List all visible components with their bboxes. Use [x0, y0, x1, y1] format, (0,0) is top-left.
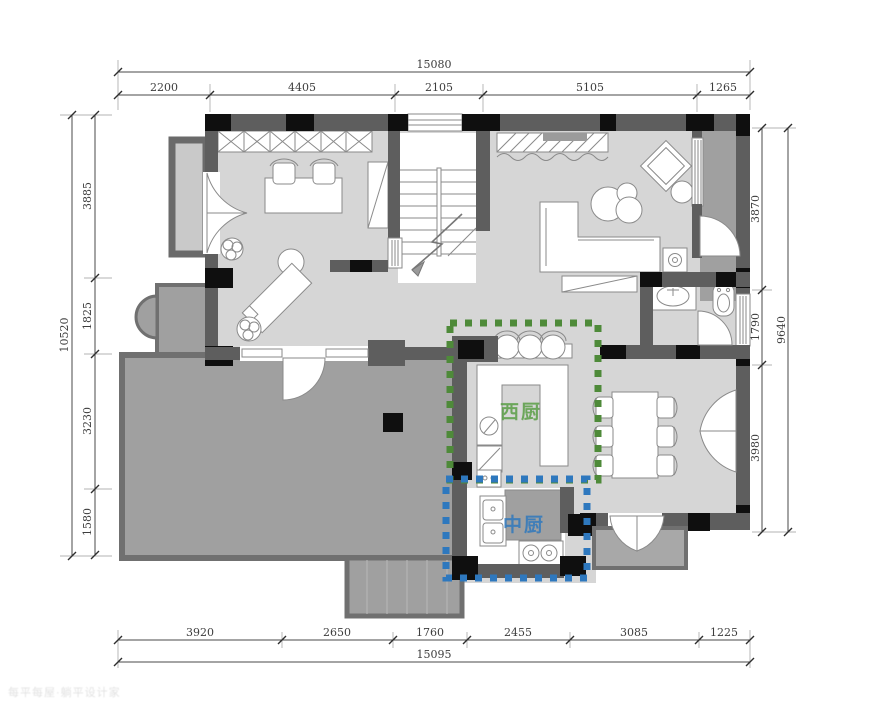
cooktop — [519, 541, 563, 565]
bar-stools — [494, 331, 566, 359]
curved-wall-bump — [136, 296, 157, 338]
tv-unit — [543, 133, 587, 141]
dim-left-total: 10520 — [58, 318, 71, 353]
dim-top-seg: 2105 — [425, 81, 453, 94]
dimension-top: 15080 2200 4405 2105 5105 1265 — [114, 58, 754, 112]
dim-right-seg: 3870 — [749, 195, 762, 223]
dim-bottom-seg: 1760 — [416, 626, 444, 639]
watermark: 每平每屋·躺平设计家 — [8, 684, 121, 700]
dim-bottom-seg: 1225 — [710, 626, 738, 639]
dim-top-seg: 5105 — [576, 81, 604, 94]
window — [408, 114, 462, 131]
dining-room — [593, 392, 677, 478]
dim-top-seg: 4405 — [288, 81, 316, 94]
dim-top-total: 15080 — [417, 58, 452, 71]
plant — [237, 317, 261, 341]
dimension-right: 3870 1790 3980 9640 — [749, 124, 796, 536]
dim-bottom-seg: 3920 — [186, 626, 214, 639]
dim-left-seg: 1580 — [81, 508, 94, 536]
floor-plan-page: 西厨 中厨 15080 2200 4405 2105 5105 1265 105… — [0, 0, 872, 713]
dim-bottom-total: 15095 — [417, 648, 452, 661]
west-kitchen-label: 西厨 — [500, 401, 542, 423]
dim-bottom-seg: 2650 — [323, 626, 351, 639]
dining-chairs-right — [657, 397, 677, 476]
dim-right-total: 9640 — [775, 316, 788, 344]
dim-top-seg: 1265 — [709, 81, 737, 94]
dimension-left: 10520 3885 1825 3230 1580 — [58, 111, 112, 560]
chinese-kitchen-label: 中厨 — [503, 513, 545, 536]
corner-table — [663, 248, 687, 272]
dining-table — [612, 392, 658, 478]
dim-left-seg: 1825 — [81, 302, 94, 330]
side-table — [671, 181, 693, 203]
dim-left-seg: 3885 — [81, 182, 94, 210]
plant — [221, 238, 243, 260]
dim-top-seg: 2200 — [150, 81, 178, 94]
balcony — [172, 140, 206, 254]
column — [383, 413, 403, 432]
dim-right-seg: 1790 — [749, 313, 762, 341]
dim-bottom-seg: 3085 — [620, 626, 648, 639]
dim-bottom-seg: 2455 — [504, 626, 532, 639]
dimension-bottom: 3920 2650 1760 2455 3085 1225 15095 — [114, 626, 754, 668]
dim-right-seg: 3980 — [749, 434, 762, 462]
floor-plan-drawing: 西厨 中厨 15080 2200 4405 2105 5105 1265 105… — [0, 0, 872, 713]
toilet — [713, 283, 734, 316]
dim-left-seg: 3230 — [81, 407, 94, 435]
